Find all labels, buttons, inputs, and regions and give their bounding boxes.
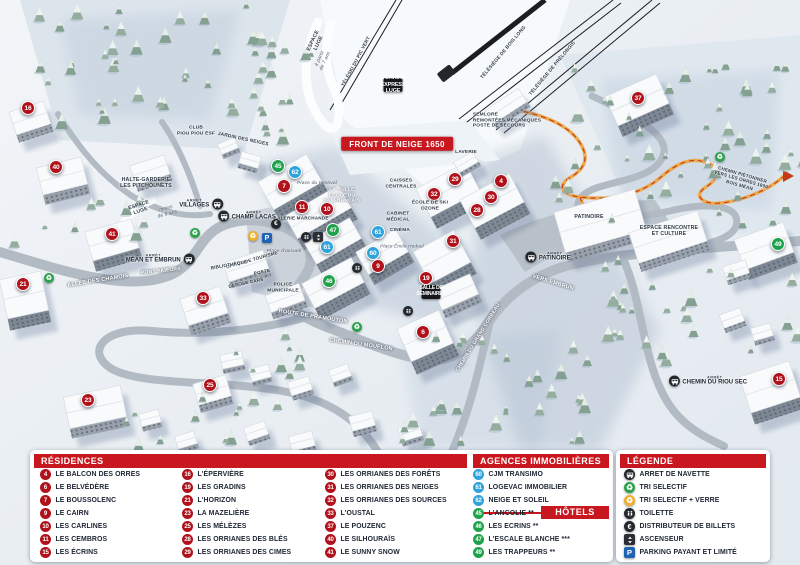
recycle-green-icon: ♻: [190, 228, 200, 238]
legende-label: TRI SELECTIF + VERRE: [640, 497, 720, 504]
legend-badge-19: 19: [182, 482, 193, 493]
bus-stop-m-an-et-embrun: ARRÊTMÉAN ET EMBRUN: [126, 254, 195, 265]
map-label: CABINET MÉDICAL: [386, 211, 409, 222]
map-label: LAVERIE: [455, 150, 477, 156]
map-label: CHEMIN DU GRAND CORBEAU: [455, 303, 502, 373]
map-label: VERS EMBRUN: [532, 274, 575, 293]
legend-badge-21: 21: [182, 495, 193, 506]
residence-row: 37LE POUZENC: [325, 520, 386, 533]
hotel-row: 49LES TRAPPEURS **: [473, 546, 555, 559]
legend-badge-61: 61: [473, 482, 484, 493]
resort-map: 1640412133232545627111047616160946322943…: [0, 0, 800, 565]
map-label: TÉLÉSIÈGE DE PRÉLONGIS: [529, 41, 578, 97]
legend-label: LE BALCON DES ORRES: [56, 471, 141, 478]
bus-stop-name: CHEMIN DU RIOU SEC: [682, 380, 747, 386]
legend-label: LE CAIRN: [56, 510, 89, 517]
map-label: CLUB PIOU PIOU ESF: [177, 125, 215, 136]
legend-label: LES TRAPPEURS **: [489, 549, 556, 556]
map-marker-37: 37: [631, 91, 645, 105]
residence-row: 30LES ORRIANES DES FORÊTS: [325, 468, 440, 481]
bus-stop-patinoire: ARRÊTPATINOIRE: [525, 252, 570, 263]
map-label: OFFICE DE TOURISME: [226, 250, 279, 270]
agence-row: 61LOGEVAC IMMOBILIER: [473, 481, 567, 494]
map-label: ESPACE RENCONTRE ET CULTURE: [640, 225, 698, 237]
bus-stop-name: CHAMP LACAS: [232, 215, 276, 221]
map-marker-30: 30: [484, 190, 498, 204]
map-label: SALLE DE SÉMINAIRES: [422, 285, 441, 299]
map-label: CHEMIN PIÉTONNIER VERS LES ORRES 1800 BO…: [712, 165, 770, 196]
residence-row: 31LES ORRIANES DES NEIGES: [325, 481, 439, 494]
legende-row: TOILETTE: [624, 507, 673, 520]
legend-badge-37: 37: [325, 521, 336, 532]
hotel-row: 47L'ESCALE BLANCHE ***: [473, 533, 570, 546]
map-marker-23: 23: [81, 393, 95, 407]
map-marker-28: 28: [470, 203, 484, 217]
legend-label: LE BOUSSOLENC: [56, 497, 117, 504]
map-label: ESPACE LUGE: [128, 200, 152, 218]
legend-badge-28: 28: [182, 534, 193, 545]
legend-badge-15: 15: [40, 547, 51, 558]
legend-panel-main: RÉSIDENCES AGENCES IMMOBILIÈRES HÔTELS 4…: [30, 450, 613, 562]
map-marker-15: 15: [772, 372, 786, 386]
map-label: HALTE-GARDERIE LES PITCHOUNETS: [120, 177, 172, 189]
bus-icon: [183, 254, 194, 265]
legend-label: LES ÉCRINS: [56, 549, 98, 556]
parking-icon: P: [262, 233, 272, 243]
residence-row: 16L'ÉPERVIÈRE: [182, 468, 244, 481]
recycle-green-icon: ♻: [352, 322, 362, 332]
legend-badge-9: 9: [40, 508, 51, 519]
map-label: ÉCOLE DE SKI OZONE: [412, 200, 448, 211]
legend-label: L'OUSTAL: [341, 510, 375, 517]
legende-label: TOILETTE: [640, 510, 674, 517]
map-label: Place du Festival: [297, 181, 337, 187]
map-marker-33: 33: [196, 291, 210, 305]
legend-label: LES CEMBROS: [56, 536, 108, 543]
bus-stop-champ-lacas: ARRÊTCHAMP LACAS: [218, 211, 276, 222]
legend-label: L'ÉPERVIÈRE: [198, 471, 244, 478]
recycle-green-icon: ♻: [715, 152, 725, 162]
legend-label: LES MÉLÈZES: [198, 523, 247, 530]
bus-icon: [525, 252, 536, 263]
euro-icon: €: [624, 521, 635, 532]
residence-row: 28LES ORRIANES DES BLÉS: [182, 533, 288, 546]
legend-badge-49: 49: [473, 547, 484, 558]
map-marker-31: 31: [446, 234, 460, 248]
legende-row: €DISTRIBUTEUR DE BILLETS: [624, 520, 735, 533]
legend-label: LES ORRIANES DES NEIGES: [341, 484, 439, 491]
map-label: POSTE: [253, 268, 270, 277]
map-label: FRONT DE NEIGE 1650: [341, 137, 453, 151]
bus-stop-name: MÉAN ET EMBRUN: [126, 258, 181, 264]
legend-badge-33: 33: [325, 508, 336, 519]
legend-badge-40: 40: [325, 534, 336, 545]
legend-label: LES GRADINS: [198, 484, 246, 491]
residence-row: 29LES ORRIANES DES CIMES: [182, 546, 291, 559]
legend-label: LES ORRIANES DES SOURCES: [341, 497, 447, 504]
residence-row: 19LES GRADINS: [182, 481, 246, 494]
legend-label: LE SILHOURAÏS: [341, 536, 396, 543]
bus-icon: [669, 376, 680, 387]
residence-row: 7LE BOUSSOLENC: [40, 494, 116, 507]
map-marker-9: 9: [371, 259, 385, 273]
bus-stop-chemin-du-riou-sec: ARRÊTCHEMIN DU RIOU SEC: [669, 376, 747, 387]
legend-label: LA MAZELIÈRE: [198, 510, 250, 517]
legend-panel-legende: LÉGENDE ARRET DE NAVETTE♻TRI SELECTIF♻TR…: [616, 450, 770, 562]
legende-row: ♻TRI SELECTIF + VERRE: [624, 494, 719, 507]
legend-badge-23: 23: [182, 508, 193, 519]
legend-badge-31: 31: [325, 482, 336, 493]
legend-label: L'ESCALE BLANCHE ***: [489, 536, 570, 543]
legend-label: LE BELVÉDÈRE: [56, 484, 110, 491]
bus-stop-name: PATINOIRE: [539, 256, 571, 262]
map-marker-7: 7: [277, 179, 291, 193]
map-label: PATINOIRE: [574, 214, 603, 220]
legend-badge-16: 16: [182, 469, 193, 480]
recycle-yellow-icon: ♻: [248, 231, 258, 241]
legend-badge-6: 6: [40, 482, 51, 493]
residence-row: 4LE BALCON DES ORRES: [40, 468, 140, 481]
residence-row: 33L'OUSTAL: [325, 507, 375, 520]
legende-row: ♻TRI SELECTIF: [624, 481, 687, 494]
map-label: CAISSES CENTRALES: [385, 178, 416, 189]
residence-row: 6LE BELVÉDÈRE: [40, 481, 109, 494]
bus-icon: [218, 211, 229, 222]
map-marker-21: 21: [16, 277, 30, 291]
map-label: TÉLÉSIÈGE DE BOIS LONG: [480, 25, 528, 80]
map-label: GALERIE MARCHANDE: [273, 215, 328, 220]
map-marker-32: 32: [427, 187, 441, 201]
bus-stop-name: VILLAGES: [179, 203, 209, 209]
legende-label: ARRET DE NAVETTE: [640, 471, 710, 478]
legend-label: CJM TRANSIMO: [489, 471, 543, 478]
map-marker-6: 6: [416, 325, 430, 339]
legend-badge-32: 32: [325, 495, 336, 506]
legend-badge-45: 45: [473, 508, 484, 519]
map-label: ROUTE DE PRAMOUTON: [278, 308, 348, 325]
elevator-icon: [313, 232, 323, 242]
bus-icon: [624, 469, 635, 480]
map-marker-29: 29: [448, 172, 462, 186]
map-label: PONT SKIEURS: [141, 267, 181, 277]
map-label: DÉPOSE CARS: [228, 277, 264, 290]
legend-label: LES ORRIANES DES CIMES: [198, 549, 292, 556]
map-marker-25: 25: [203, 378, 217, 392]
map-marker-60: 60: [366, 246, 380, 260]
residence-row: 25LES MÉLÈZES: [182, 520, 246, 533]
toilet-icon: [352, 263, 362, 273]
agences-header: AGENCES IMMOBILIÈRES: [473, 454, 609, 468]
legend-badge-7: 7: [40, 495, 51, 506]
map-marker-45: 45: [271, 159, 285, 173]
hotel-row: 46LES ECRINS **: [473, 520, 538, 533]
agence-row: 62NEIGE ET SOLEIL: [473, 494, 549, 507]
residence-row: 15LES ÉCRINS: [40, 546, 98, 559]
toilet-icon: [403, 306, 413, 316]
map-label: moins de 6 ans: [156, 204, 178, 220]
map-label: POLICE MUNICIPALE: [267, 282, 299, 293]
hotel-row: 45L'ANCOLIE **: [473, 507, 534, 520]
legend-badge-29: 29: [182, 547, 193, 558]
legend-badge-41: 41: [325, 547, 336, 558]
legend-label: LES ORRIANES DES BLÉS: [198, 536, 288, 543]
legend-badge-4: 4: [40, 469, 51, 480]
residence-row: 41LE SUNNY SNOW: [325, 546, 400, 559]
elevator-icon: [624, 534, 635, 545]
residence-row: 32LES ORRIANES DES SOURCES: [325, 494, 447, 507]
residence-row: 11LES CEMBROS: [40, 533, 107, 546]
legend-label: L'HORIZON: [198, 497, 237, 504]
legend-badge-11: 11: [40, 534, 51, 545]
map-marker-41: 41: [105, 227, 119, 241]
map-marker-11: 11: [295, 200, 309, 214]
hotels-header: HÔTELS: [541, 506, 609, 519]
legend-label: LE SUNNY SNOW: [341, 549, 400, 556]
legend-badge-60: 60: [473, 469, 484, 480]
map-marker-61: 61: [320, 240, 334, 254]
toilet-icon: [624, 508, 635, 519]
euro-icon: €: [271, 219, 281, 229]
map-marker-19: 19: [419, 271, 433, 285]
toilet-icon: [301, 232, 311, 242]
legend-badge-46: 46: [473, 521, 484, 532]
map-marker-40: 40: [49, 160, 63, 174]
map-label: CINÉMA: [390, 228, 410, 234]
map-label: SEMLORE REMONTÉES MÉCANIQUES POSTE DE SE…: [473, 113, 541, 130]
recycle-green-icon: ♻: [44, 273, 54, 283]
legende-header: LÉGENDE: [620, 454, 766, 468]
legend-label: LOGEVAC IMMOBILIER: [489, 484, 568, 491]
legend-label: LES CARLINES: [56, 523, 108, 530]
map-label: JARDIN DES NEIGES: [217, 132, 269, 148]
parking-icon: P: [624, 547, 635, 558]
legend-badge-10: 10: [40, 521, 51, 532]
residence-row: 9LE CAIRN: [40, 507, 89, 520]
legend-label: LES ECRINS **: [489, 523, 539, 530]
map-marker-46: 46: [322, 274, 336, 288]
map-label: TÉLÉSKI DU PIC VERT: [341, 36, 372, 88]
map-marker-62: 62: [288, 165, 302, 179]
map-label: Place Émile Hodoul: [380, 243, 424, 248]
map-label: L'ORRIAN EXPRESS LUGE: [384, 78, 403, 92]
recycle-yellow-icon: ♻: [624, 495, 635, 506]
map-label: ALLÉE DES CHAMOIS: [67, 273, 129, 289]
legende-label: DISTRIBUTEUR DE BILLETS: [640, 523, 736, 530]
residence-row: 23LA MAZELIÈRE: [182, 507, 249, 520]
residences-header: RÉSIDENCES: [34, 454, 467, 468]
residence-row: 40LE SILHOURAÏS: [325, 533, 395, 546]
legend-label: LES ORRIANES DES FORÊTS: [341, 471, 441, 478]
legend-badge-30: 30: [325, 469, 336, 480]
legend-badge-62: 62: [473, 495, 484, 506]
map-marker-4: 4: [494, 174, 508, 188]
map-marker-16: 16: [21, 101, 35, 115]
legend-badge-25: 25: [182, 521, 193, 532]
map-marker-49: 49: [771, 237, 785, 251]
residence-row: 10LES CARLINES: [40, 520, 107, 533]
legende-label: ASCENSEUR: [640, 536, 684, 543]
legend-label: L'ANCOLIE **: [489, 510, 534, 517]
legend-label: LE POUZENC: [341, 523, 386, 530]
legend-badge-47: 47: [473, 534, 484, 545]
map-label: CHEMIN DU MOUFLON: [329, 337, 393, 352]
legende-row: ARRET DE NAVETTE: [624, 468, 710, 481]
map-marker-61: 61: [371, 225, 385, 239]
agence-row: 60CJM TRANSIMO: [473, 468, 543, 481]
legende-label: PARKING PAYANT ET LIMITÉ: [640, 549, 737, 556]
bus-icon: [212, 199, 223, 210]
legend-label: NEIGE ET SOLEIL: [489, 497, 549, 504]
legende-row: ASCENSEUR: [624, 533, 684, 546]
recycle-green-icon: ♻: [624, 482, 635, 493]
map-marker-47: 47: [326, 223, 340, 237]
bus-stop-villages: ARRÊTVILLAGES: [179, 199, 223, 210]
legende-label: TRI SELECTIF: [640, 484, 688, 491]
legende-row: PPARKING PAYANT ET LIMITÉ: [624, 546, 737, 559]
residence-row: 21L'HORIZON: [182, 494, 236, 507]
map-label: LA BULLE ÉCOLE DU SKI FRANÇAIS: [324, 188, 361, 205]
